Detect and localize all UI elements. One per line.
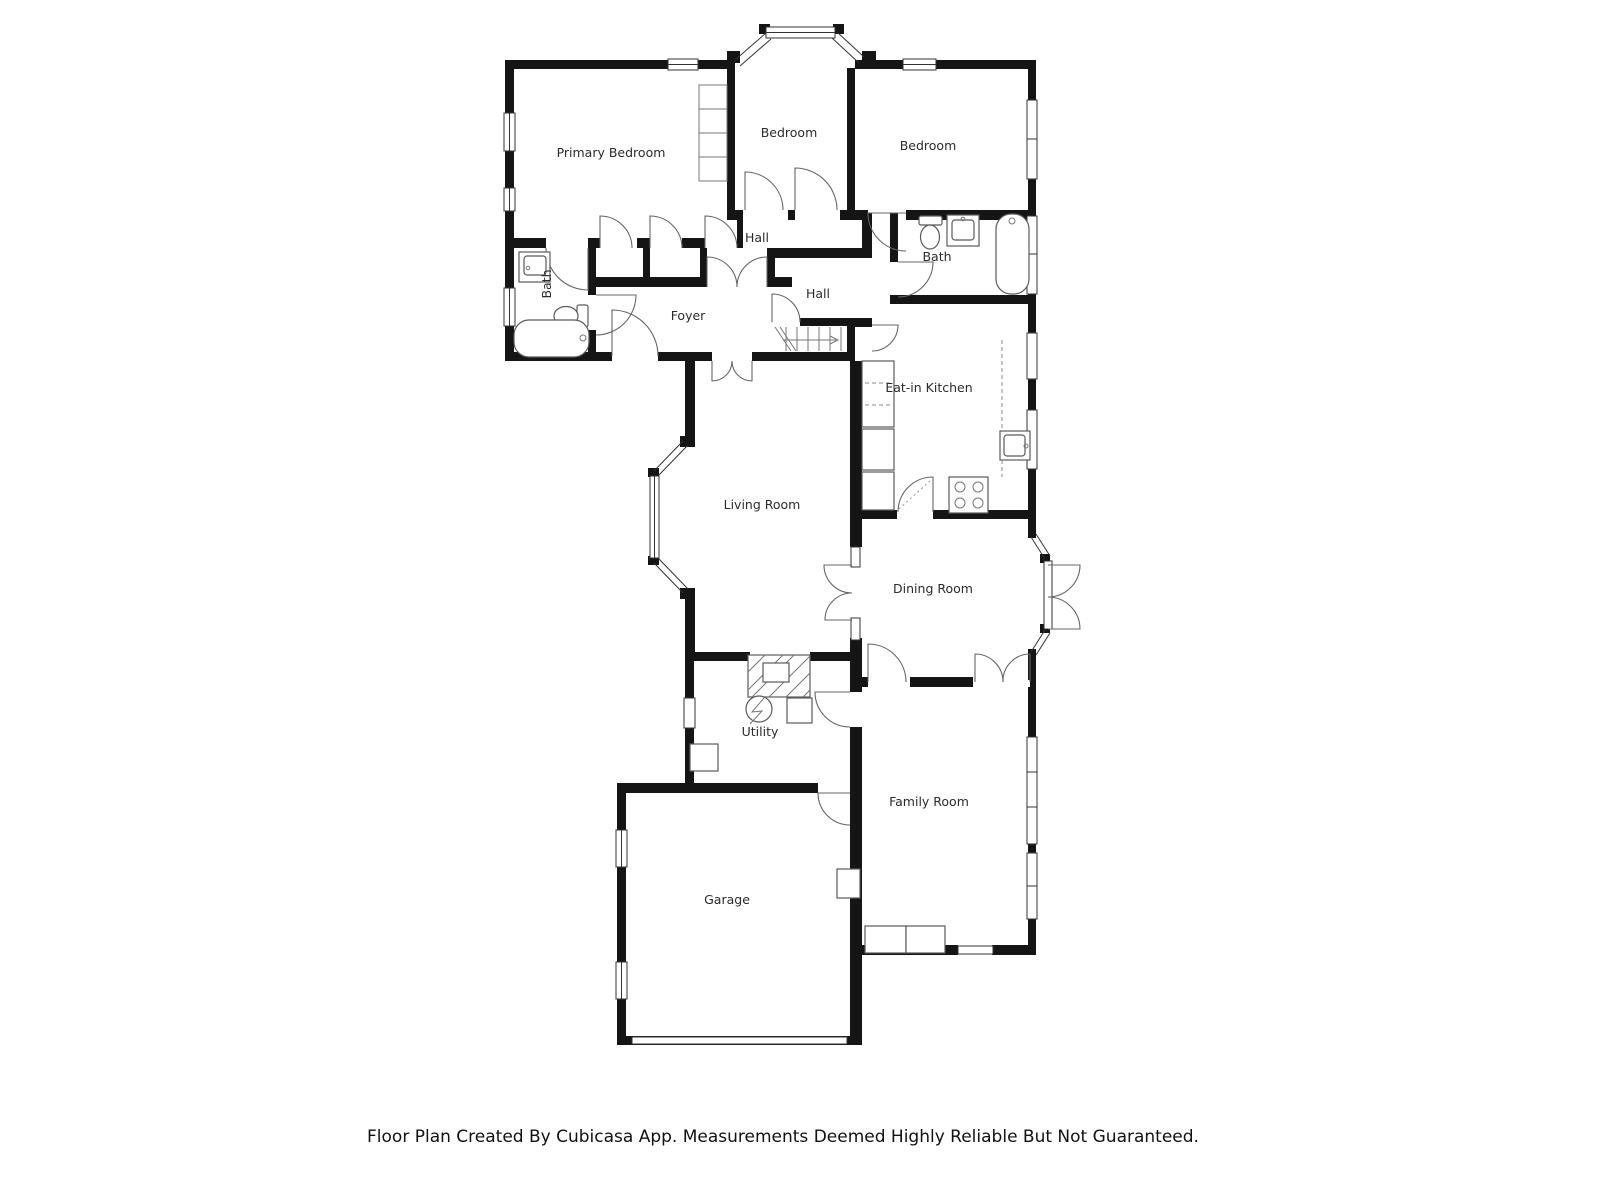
wall-segment xyxy=(617,783,626,1045)
window xyxy=(851,547,860,567)
wall-segment xyxy=(505,60,735,69)
wall-segment xyxy=(1030,677,1036,687)
door-swing xyxy=(868,644,906,682)
wall-segment xyxy=(737,238,743,248)
stair-part xyxy=(763,663,789,682)
sink-part xyxy=(952,220,974,240)
wall-segment xyxy=(588,248,596,295)
wall-segment xyxy=(850,660,862,692)
wall-segment xyxy=(727,210,743,220)
door-swing xyxy=(712,361,732,381)
wall-segment xyxy=(637,238,650,248)
staircase-main xyxy=(775,327,841,351)
door-swing xyxy=(872,325,898,351)
wall-segment xyxy=(847,318,872,327)
tub-part xyxy=(514,320,589,357)
toilet-part xyxy=(921,225,940,249)
window xyxy=(851,618,860,640)
door-swing xyxy=(596,295,636,335)
door-swing xyxy=(975,654,1003,682)
wall-segment xyxy=(682,238,705,248)
floor-plan-canvas: Primary Bedroom Bedroom Bedroom Bath Bat… xyxy=(0,0,1600,1200)
room-label-bedroom-top: Bedroom xyxy=(761,125,818,140)
stove-icon xyxy=(949,477,988,513)
room-label-bath-left: Bath xyxy=(539,269,554,298)
wall-segment xyxy=(890,213,898,262)
wall-segment xyxy=(800,318,855,326)
sink-icon xyxy=(1000,431,1030,460)
windows xyxy=(504,27,1052,1044)
shelf xyxy=(699,157,727,181)
water-heater xyxy=(787,698,812,723)
door-swing xyxy=(1003,654,1030,682)
shelf xyxy=(699,109,727,133)
wall-segment xyxy=(680,588,695,599)
toilet-icon xyxy=(919,216,942,249)
closet-shelves xyxy=(699,85,727,181)
wall-segment xyxy=(847,68,855,210)
wall-segment xyxy=(855,60,1036,69)
wall-segment xyxy=(727,60,735,220)
room-label-eat-in-kitchen: Eat-in Kitchen xyxy=(885,380,972,395)
door-swing xyxy=(815,692,850,727)
window xyxy=(1027,333,1037,379)
bathtub-icon xyxy=(514,320,589,357)
wall-segment xyxy=(862,677,868,687)
room-label-primary-bedroom: Primary Bedroom xyxy=(557,145,666,160)
wall-segment xyxy=(850,510,862,547)
stove-part xyxy=(949,477,988,513)
staircase-basement xyxy=(748,655,810,697)
bathtub-icon xyxy=(996,214,1029,294)
shelf xyxy=(699,85,727,109)
toilet-part xyxy=(919,216,942,225)
shelf xyxy=(699,133,727,157)
door-swing xyxy=(600,216,632,248)
door-swing xyxy=(707,257,737,287)
door-swing xyxy=(705,216,737,248)
wall-segment xyxy=(658,352,712,361)
room-label-living-room: Living Room xyxy=(724,497,801,512)
cabinet xyxy=(865,926,906,953)
door-swing xyxy=(795,168,837,210)
door-swing xyxy=(732,361,752,381)
window xyxy=(684,698,695,728)
wall-segment xyxy=(685,652,750,661)
door-swing xyxy=(868,213,906,251)
door-swing xyxy=(745,172,783,210)
electrical-panel-icon xyxy=(746,696,772,724)
window xyxy=(1027,737,1037,844)
counter-edge xyxy=(899,480,931,509)
window xyxy=(1044,561,1052,629)
tub-part xyxy=(996,214,1029,294)
wall-segment xyxy=(775,248,862,258)
room-label-hall-lower: Hall xyxy=(806,286,830,301)
door-swing xyxy=(1048,597,1080,629)
room-label-family-room: Family Room xyxy=(889,794,969,809)
door-swing xyxy=(650,216,682,248)
door-swing xyxy=(818,793,850,825)
door-swing xyxy=(772,294,800,322)
utility-part xyxy=(746,696,772,722)
wall-segment xyxy=(596,277,707,287)
door-swing xyxy=(737,257,767,287)
room-label-dining-room: Dining Room xyxy=(893,581,973,596)
appliance xyxy=(690,744,718,771)
room-label-utility: Utility xyxy=(742,724,779,739)
door-swing xyxy=(825,593,852,620)
door-swing xyxy=(612,310,658,356)
kitchen-counter xyxy=(862,429,894,470)
room-label-bedroom-right: Bedroom xyxy=(900,138,957,153)
wall-segment xyxy=(862,213,872,258)
door-swing xyxy=(1048,565,1080,597)
sink-icon xyxy=(947,215,979,246)
wall-segment xyxy=(700,248,707,287)
footer-disclaimer: Floor Plan Created By Cubicasa App. Meas… xyxy=(367,1127,1199,1147)
wall-segment xyxy=(685,592,695,660)
wall-segment xyxy=(992,945,1036,955)
wall-segment xyxy=(890,295,1036,304)
stair-part xyxy=(786,327,841,351)
cabinet xyxy=(906,926,945,953)
room-label-garage: Garage xyxy=(704,892,750,907)
wall-segment xyxy=(588,238,600,248)
wall-segment xyxy=(505,238,546,248)
room-label-hall-upper: Hall xyxy=(745,230,769,245)
wall-segment xyxy=(617,783,818,793)
window xyxy=(958,946,993,954)
cabinet xyxy=(837,869,860,898)
wall-segment xyxy=(685,361,695,443)
wall-segment xyxy=(643,248,650,277)
wall-segment xyxy=(810,652,862,661)
wall-segment xyxy=(767,277,792,287)
wall-segment xyxy=(788,210,795,220)
walls xyxy=(505,24,1050,1045)
room-label-bath-right: Bath xyxy=(922,249,951,264)
wall-segment xyxy=(737,220,743,238)
sink-part xyxy=(1004,435,1025,456)
door-swing xyxy=(898,262,933,297)
wall-segment xyxy=(752,352,855,361)
room-label-foyer: Foyer xyxy=(671,308,706,323)
wall-segment xyxy=(862,510,897,519)
kitchen-counter xyxy=(862,472,894,510)
wall-segment xyxy=(910,677,973,687)
wall-segment xyxy=(850,361,862,510)
door-swing xyxy=(824,565,852,593)
garage-door xyxy=(632,1037,847,1044)
